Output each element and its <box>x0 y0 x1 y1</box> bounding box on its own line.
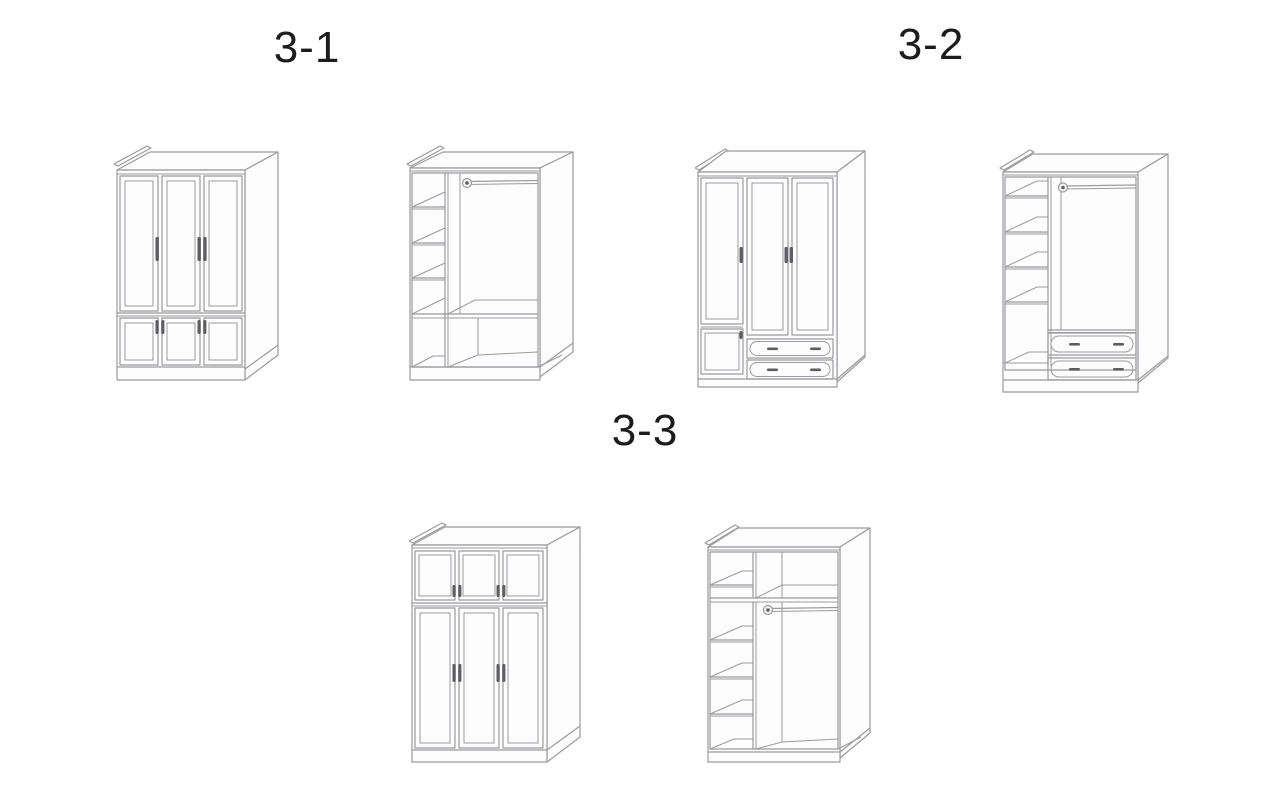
drawer-handle <box>810 348 821 351</box>
wardrobe-closed-front-view <box>695 141 873 391</box>
cabinet-front-face <box>698 172 837 387</box>
cabinet-side-face <box>1138 154 1168 383</box>
door-handle <box>790 247 793 263</box>
drawer-handle <box>767 348 778 351</box>
drawer-handle <box>1069 368 1080 371</box>
door-handle <box>453 664 456 682</box>
cabinet-top-face <box>698 151 865 172</box>
wardrobe-3-2-closed-view-drawing <box>695 141 873 391</box>
cabinet-front-face <box>708 547 840 762</box>
small-door-handle <box>458 585 461 597</box>
door-handle <box>156 237 159 261</box>
drawer-handle <box>1113 368 1124 371</box>
cabinet-side-face <box>840 528 870 758</box>
cabinet-front-face <box>117 170 245 380</box>
cabinet-front-face <box>412 545 547 762</box>
small-door-handle <box>198 320 201 334</box>
small-door-handle <box>497 585 500 597</box>
door-handle <box>198 237 201 261</box>
drawer-handle <box>1113 343 1124 346</box>
wardrobe-3-1-closed-view-drawing <box>112 143 284 387</box>
wardrobe-open-interior-view <box>704 521 882 769</box>
door-handle <box>497 664 500 682</box>
figure-label-3-3: 3-3 <box>575 408 715 454</box>
cabinet-side-face <box>547 527 580 762</box>
wardrobe-3-3-closed-view-drawing <box>409 521 587 769</box>
cabinet-side-face <box>540 152 573 377</box>
wardrobe-closed-front-view <box>409 521 587 769</box>
door-handle <box>458 664 461 682</box>
figure-label-3-1: 3-1 <box>237 25 377 71</box>
small-door-handle <box>740 331 743 339</box>
door-handle <box>785 247 788 263</box>
cabinet-front-face <box>1003 172 1138 392</box>
wardrobe-3-2-open-view-drawing <box>999 148 1177 396</box>
drawer-handle <box>810 369 821 372</box>
wardrobe-open-interior-view <box>405 143 577 391</box>
door-handle <box>502 664 505 682</box>
small-door-handle <box>502 585 505 597</box>
cabinet-side-face <box>245 152 278 380</box>
door-handle <box>203 237 206 261</box>
door-handle <box>740 247 743 263</box>
small-door-handle <box>453 585 456 597</box>
wardrobe-3-1-open-view-drawing <box>405 143 577 391</box>
catalog-page: 3-1 3-2 3-3 <box>0 0 1280 800</box>
drawer-handle <box>1069 343 1080 346</box>
figure-label-3-2: 3-2 <box>861 22 1001 68</box>
drawer-handle <box>767 369 778 372</box>
wardrobe-3-3-open-view-drawing <box>704 521 882 769</box>
wardrobe-closed-front-view <box>112 143 284 387</box>
wardrobe-open-interior-view <box>999 148 1177 396</box>
cabinet-side-face <box>837 151 865 382</box>
small-door-handle <box>161 320 164 334</box>
cabinet-front-face <box>410 168 540 380</box>
small-door-handle <box>203 320 206 334</box>
small-door-handle <box>156 320 159 334</box>
